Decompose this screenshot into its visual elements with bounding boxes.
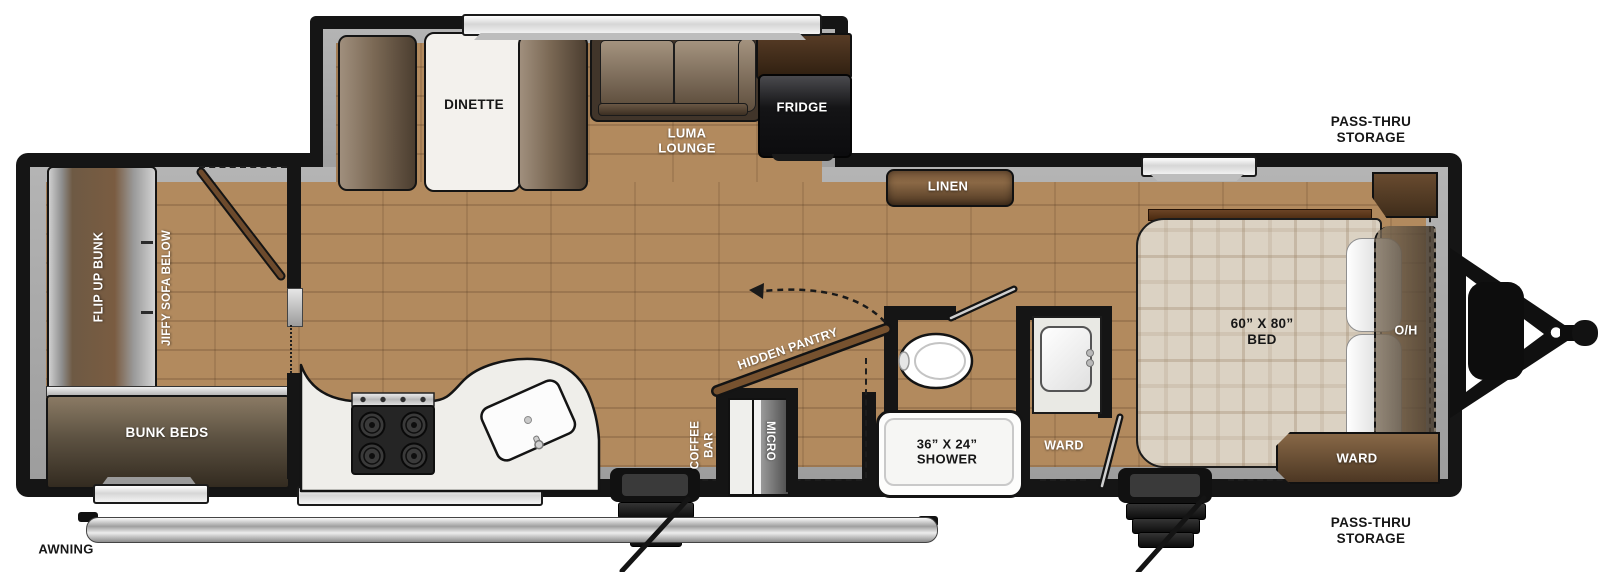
pass-thru-top-label: PASS-THRU STORAGE [1331, 114, 1411, 146]
flip-up-bunk-label: FLIP UP BUNK [92, 232, 107, 323]
pantry-swing-arc [749, 283, 885, 322]
bedroom-door [1102, 417, 1120, 486]
toilet [899, 334, 972, 388]
ward-bedroom-label: WARD [1337, 450, 1378, 465]
stove [352, 393, 434, 474]
jiffy-sofa-label: JIFFY SOFA BELOW [161, 230, 175, 346]
bed-label: 60” X 80” BED [1231, 316, 1294, 348]
luma-lounge-label: LUMA LOUNGE [658, 126, 715, 157]
entry-rod-bedroom [1138, 498, 1204, 572]
linen-label: LINEN [928, 178, 969, 193]
bathroom-door [951, 289, 1014, 318]
overhead-label: O/H [1394, 324, 1417, 339]
overlay-graphics [0, 0, 1600, 572]
bunkroom-door [201, 172, 281, 276]
fridge-label: FRIDGE [777, 99, 828, 114]
awning-label: AWNING [38, 541, 93, 556]
entry-rod-main [622, 499, 688, 571]
bunk-beds-label: BUNK BEDS [126, 425, 209, 441]
micro-label: MICRO [762, 421, 776, 461]
floorplan-canvas: DINETTE LUMA LOUNGE FRIDGE LINEN PASS-TH… [0, 0, 1600, 572]
dinette-label: DINETTE [444, 97, 504, 113]
coffee-bar-label: COFFEE BAR [689, 421, 716, 469]
shower-label: 36” X 24” SHOWER [917, 437, 978, 468]
trailer-hitch [1450, 248, 1598, 418]
pass-thru-bottom-label: PASS-THRU STORAGE [1331, 515, 1411, 547]
ward-bath-label: WARD [1044, 439, 1083, 454]
